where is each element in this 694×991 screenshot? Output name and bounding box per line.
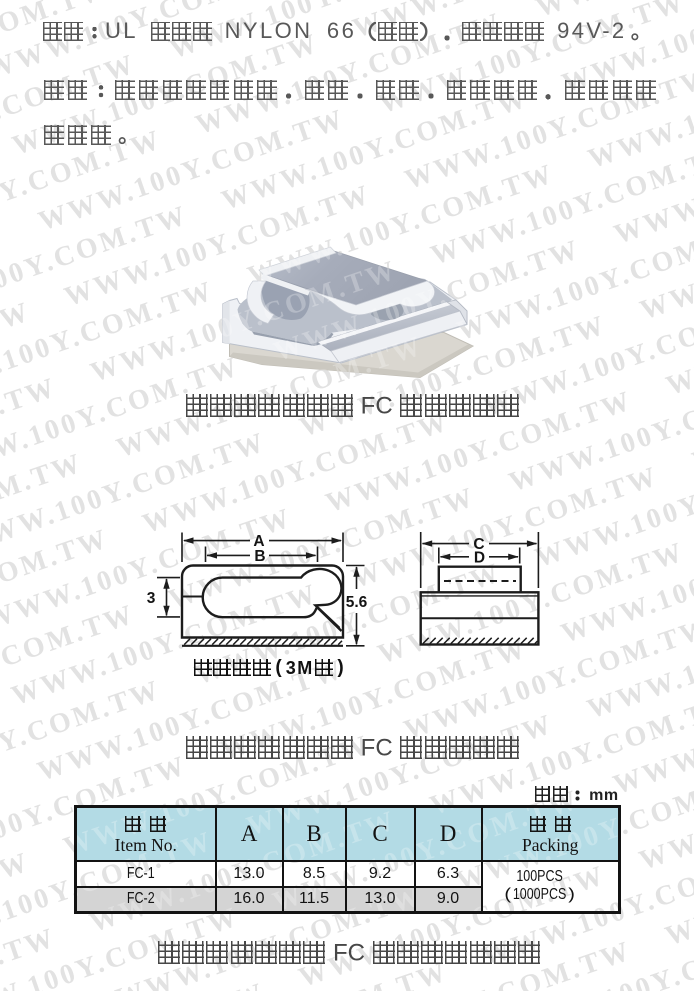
svg-text:D: D xyxy=(474,550,485,567)
svg-text:B: B xyxy=(254,548,265,565)
svg-text:3: 3 xyxy=(147,590,156,607)
svg-text:5.6: 5.6 xyxy=(346,594,368,611)
